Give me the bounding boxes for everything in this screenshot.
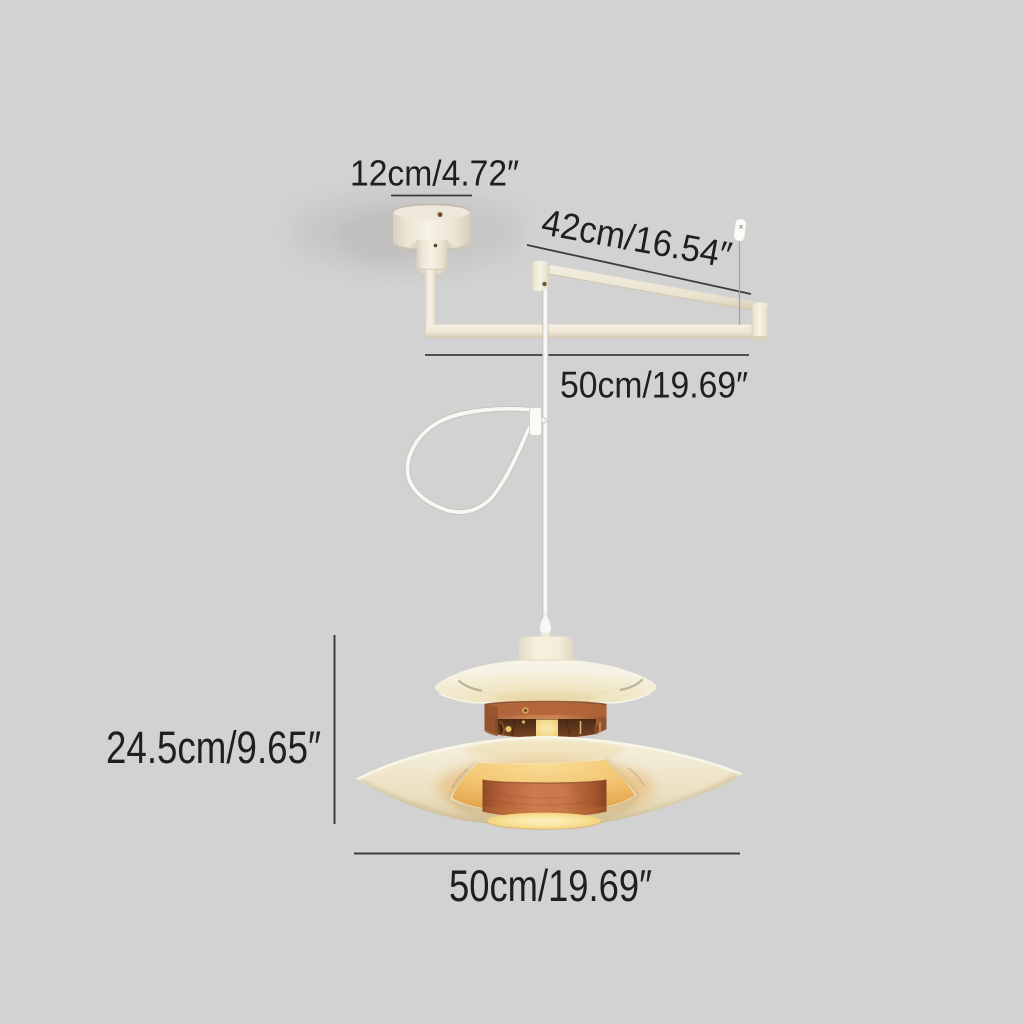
svg-text:50cm/19.69″: 50cm/19.69″ [560,365,748,406]
svg-text:50cm/19.69″: 50cm/19.69″ [449,862,652,911]
svg-text:24.5cm/9.65″: 24.5cm/9.65″ [106,722,321,773]
svg-text:12cm/4.72″: 12cm/4.72″ [350,153,519,194]
